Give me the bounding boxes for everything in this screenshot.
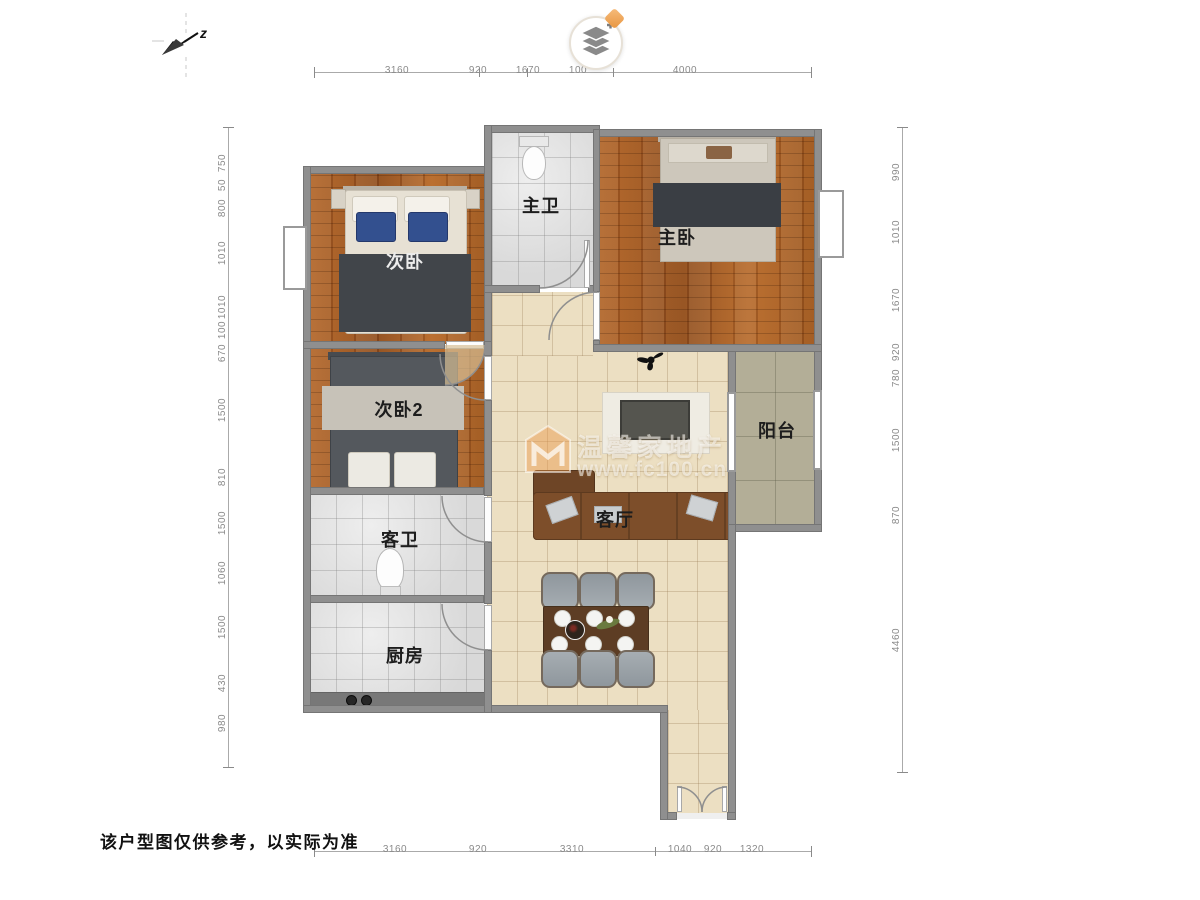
dining-chair — [579, 572, 617, 610]
dim-label: 920 — [458, 66, 498, 76]
room-label-kitchen: 厨房 — [370, 646, 440, 666]
wall-segment — [310, 595, 484, 603]
room-label-master-bath: 主卫 — [506, 196, 576, 216]
watermark-logo — [523, 422, 573, 474]
room-label-bed2: 次卧 — [370, 252, 440, 272]
door-leaf-entry-left — [677, 786, 682, 812]
room-label-guest-bath: 客卫 — [365, 530, 435, 550]
dim-label: 1500 — [892, 423, 902, 457]
wall-segment — [484, 125, 600, 133]
door-leaf-kitchen — [484, 605, 492, 650]
dim-label: 1060 — [218, 556, 228, 590]
dining-chair — [617, 650, 655, 688]
dining-chair — [541, 650, 579, 688]
dim-line-right — [902, 128, 903, 773]
window-balcony-right — [813, 390, 822, 470]
dim-label: 1500 — [218, 393, 228, 427]
dim-label: 670 — [218, 336, 228, 370]
dim-label: 1500 — [218, 610, 228, 644]
wall-segment — [484, 650, 492, 713]
wall-segment — [303, 166, 492, 174]
room-label-bed3: 次卧2 — [360, 400, 438, 420]
door-leaf-bed2 — [446, 341, 484, 349]
bed2-pillow-blue-left — [356, 212, 396, 242]
wall-segment — [484, 341, 492, 356]
bed2-nightstand-left — [331, 189, 346, 209]
wall-segment — [303, 341, 445, 349]
floor-hall — [492, 292, 593, 356]
wall-segment — [728, 524, 822, 532]
bed2-pillow-blue-right — [408, 212, 448, 242]
compass-icon: z — [140, 5, 235, 85]
table-flower — [606, 616, 613, 623]
dim-label: 800 — [218, 191, 228, 225]
dining-chair — [617, 572, 655, 610]
bed2-nightstand-right — [465, 189, 480, 209]
master-bed-blanket — [653, 183, 781, 227]
dining-chair — [579, 650, 617, 688]
wall-segment — [484, 125, 492, 349]
wall-segment — [593, 344, 822, 352]
room-label-master: 主卧 — [642, 228, 712, 248]
dim-label: 1670 — [508, 66, 548, 76]
compass-label: z — [199, 25, 207, 41]
door-leaf-bed3 — [484, 356, 492, 400]
wall-segment — [593, 129, 822, 137]
floorplan-page: z — [0, 0, 1200, 900]
dim-line-left — [228, 128, 229, 768]
dim-label: 780 — [892, 361, 902, 395]
wall-segment — [728, 524, 736, 820]
dim-label: 3310 — [552, 845, 592, 855]
dim-label: 3160 — [377, 66, 417, 76]
dim-label: 4460 — [892, 623, 902, 657]
dining-chair — [541, 572, 579, 610]
wall-segment — [310, 487, 484, 495]
dim-label: 1010 — [218, 236, 228, 270]
dim-label: 920 — [458, 845, 498, 855]
dim-label: 3160 — [375, 845, 415, 855]
dim-tick — [655, 847, 656, 856]
dim-tick — [613, 68, 614, 77]
dim-tick — [223, 127, 234, 128]
dim-label: 1670 — [892, 283, 902, 317]
dim-label: 4000 — [665, 66, 705, 76]
wall-segment — [593, 129, 600, 292]
wall-segment — [660, 705, 668, 820]
wall-segment — [484, 542, 492, 604]
disclaimer-text: 该户型图仅供参考，以实际为准 — [100, 828, 359, 853]
toilet-bowl-master — [522, 146, 546, 180]
wall-segment — [727, 812, 736, 820]
dim-label: 1010 — [892, 215, 902, 249]
dim-tick — [223, 767, 234, 768]
dim-label: 810 — [218, 460, 228, 494]
wall-segment — [484, 285, 540, 293]
door-leaf-guest-bath — [484, 497, 492, 542]
door-leaf-master — [593, 292, 600, 340]
room-label-balcony: 阳台 — [742, 421, 812, 441]
dim-tick — [897, 772, 908, 773]
dim-label: 1500 — [218, 506, 228, 540]
window-balcony-left — [727, 392, 736, 472]
dim-label: 870 — [892, 498, 902, 532]
plate — [618, 610, 635, 627]
room-label-living: 客厅 — [580, 510, 650, 530]
toilet-bowl-guest — [376, 548, 404, 590]
window-master — [818, 190, 844, 258]
door-leaf-entry-right — [722, 786, 727, 812]
dim-label: 430 — [218, 666, 228, 700]
dim-tick — [811, 67, 812, 78]
door-leaf-master-bath — [584, 240, 590, 288]
entry-threshold — [677, 813, 727, 819]
dim-label: 1320 — [732, 845, 772, 855]
dim-label: 980 — [218, 706, 228, 740]
dish-bowl — [565, 620, 585, 640]
bed3-pillow-right — [394, 452, 436, 488]
dim-tick — [897, 127, 908, 128]
dim-tick — [314, 67, 315, 78]
wall-segment — [484, 400, 492, 496]
dim-tick — [811, 846, 812, 857]
wall-segment — [303, 341, 311, 713]
window-bed2 — [283, 226, 307, 290]
dim-label: 920 — [693, 845, 733, 855]
master-bed-cushion — [706, 146, 732, 159]
dim-label: 990 — [892, 155, 902, 189]
bed3-pillow-left — [348, 452, 390, 488]
watermark-url: www.fc100.cn — [577, 458, 727, 482]
